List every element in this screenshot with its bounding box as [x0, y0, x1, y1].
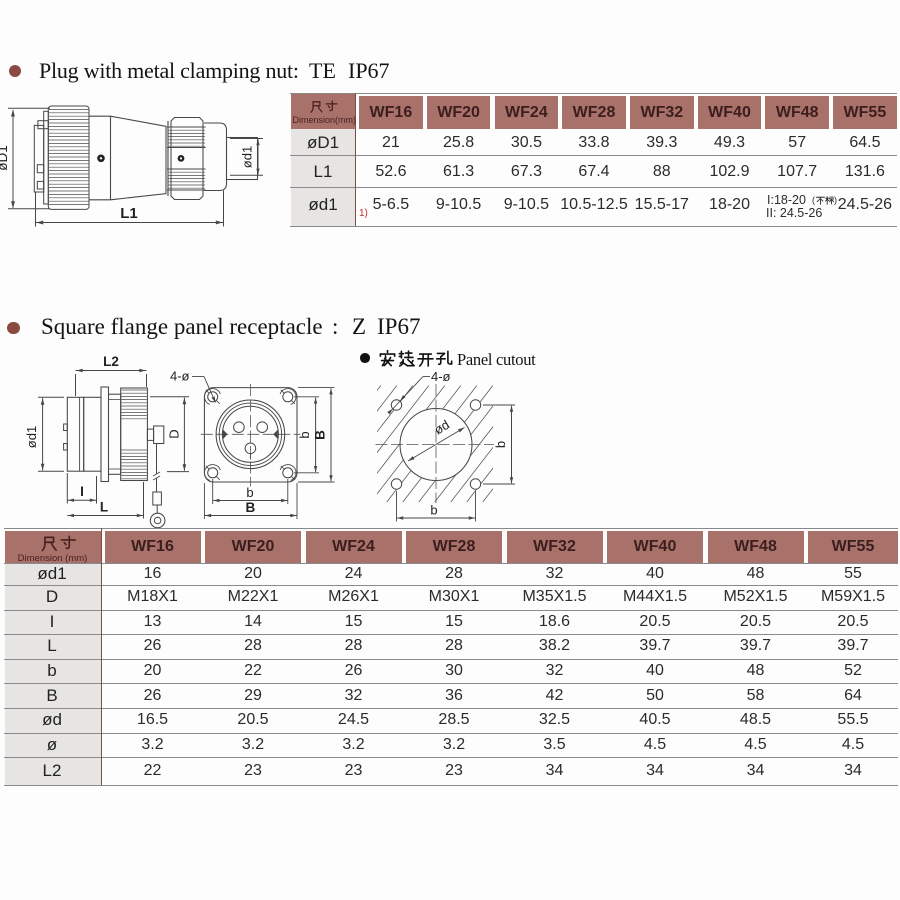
- svg-text:b: b: [246, 485, 253, 500]
- svg-text:b: b: [493, 441, 508, 448]
- svg-text:4-ø: 4-ø: [170, 369, 190, 384]
- svg-text:L1: L1: [120, 205, 138, 222]
- svg-text:øD1: øD1: [0, 145, 10, 171]
- svg-text:B: B: [246, 500, 256, 515]
- svg-text:4-ø: 4-ø: [431, 369, 451, 384]
- svg-text:D: D: [167, 429, 182, 438]
- svg-text:L2: L2: [103, 354, 119, 369]
- svg-text:b: b: [297, 431, 312, 438]
- svg-text:L: L: [100, 500, 108, 515]
- svg-text:I: I: [80, 484, 84, 499]
- svg-text:b: b: [430, 503, 437, 518]
- svg-text:ød1: ød1: [240, 146, 255, 168]
- svg-text:B: B: [313, 430, 328, 440]
- svg-text:ød: ød: [431, 417, 452, 438]
- svg-text:ød1: ød1: [24, 426, 39, 448]
